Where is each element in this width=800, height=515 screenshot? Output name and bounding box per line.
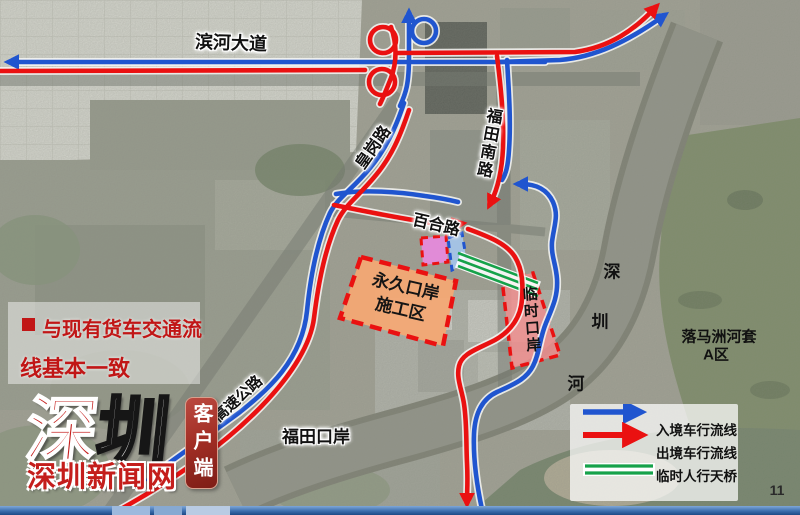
bottom-bar-segment: [154, 506, 182, 515]
river-name-char-zhen: 圳: [592, 314, 609, 331]
legend-label-footbridge: 临时人行天桥: [656, 465, 737, 485]
river-name-char-he: 河: [568, 376, 585, 393]
bottom-bar-segment: [112, 506, 150, 515]
legend-panel: 入境车行流线 出境车行流线 临时人行天桥: [570, 404, 738, 501]
pink-facility-box: [421, 236, 448, 265]
page-number: 11: [770, 482, 785, 498]
label-loop-area-a: A区: [703, 348, 729, 363]
annotation-line1: 与现有货车交通流: [42, 313, 202, 342]
legend-label-outbound: 出境车行流线: [656, 442, 737, 462]
road-label-binhe-avenue: 滨河大道: [195, 33, 268, 54]
logo-site-name: 深圳新闻网: [27, 464, 177, 493]
label-lok-ma-chau-loop: 落马洲河套: [681, 330, 756, 345]
slide-traffic-flow-map: 滨河大道 皇岗路 福田南路 百合路 高速公路 福田口岸 深 圳 河 落马洲河套 …: [0, 0, 800, 515]
client-badge-text: 客户端: [187, 403, 216, 484]
label-futian-port: 福田口岸: [282, 429, 350, 446]
client-app-badge: 客户端: [185, 397, 218, 489]
legend-label-inbound: 入境车行流线: [656, 419, 737, 439]
bottom-bar-segment: [186, 506, 230, 515]
label-temporary-port: 临时口岸: [521, 286, 541, 355]
river-name-char-shen: 深: [604, 264, 621, 281]
annotation-bullet-square: [22, 318, 35, 331]
